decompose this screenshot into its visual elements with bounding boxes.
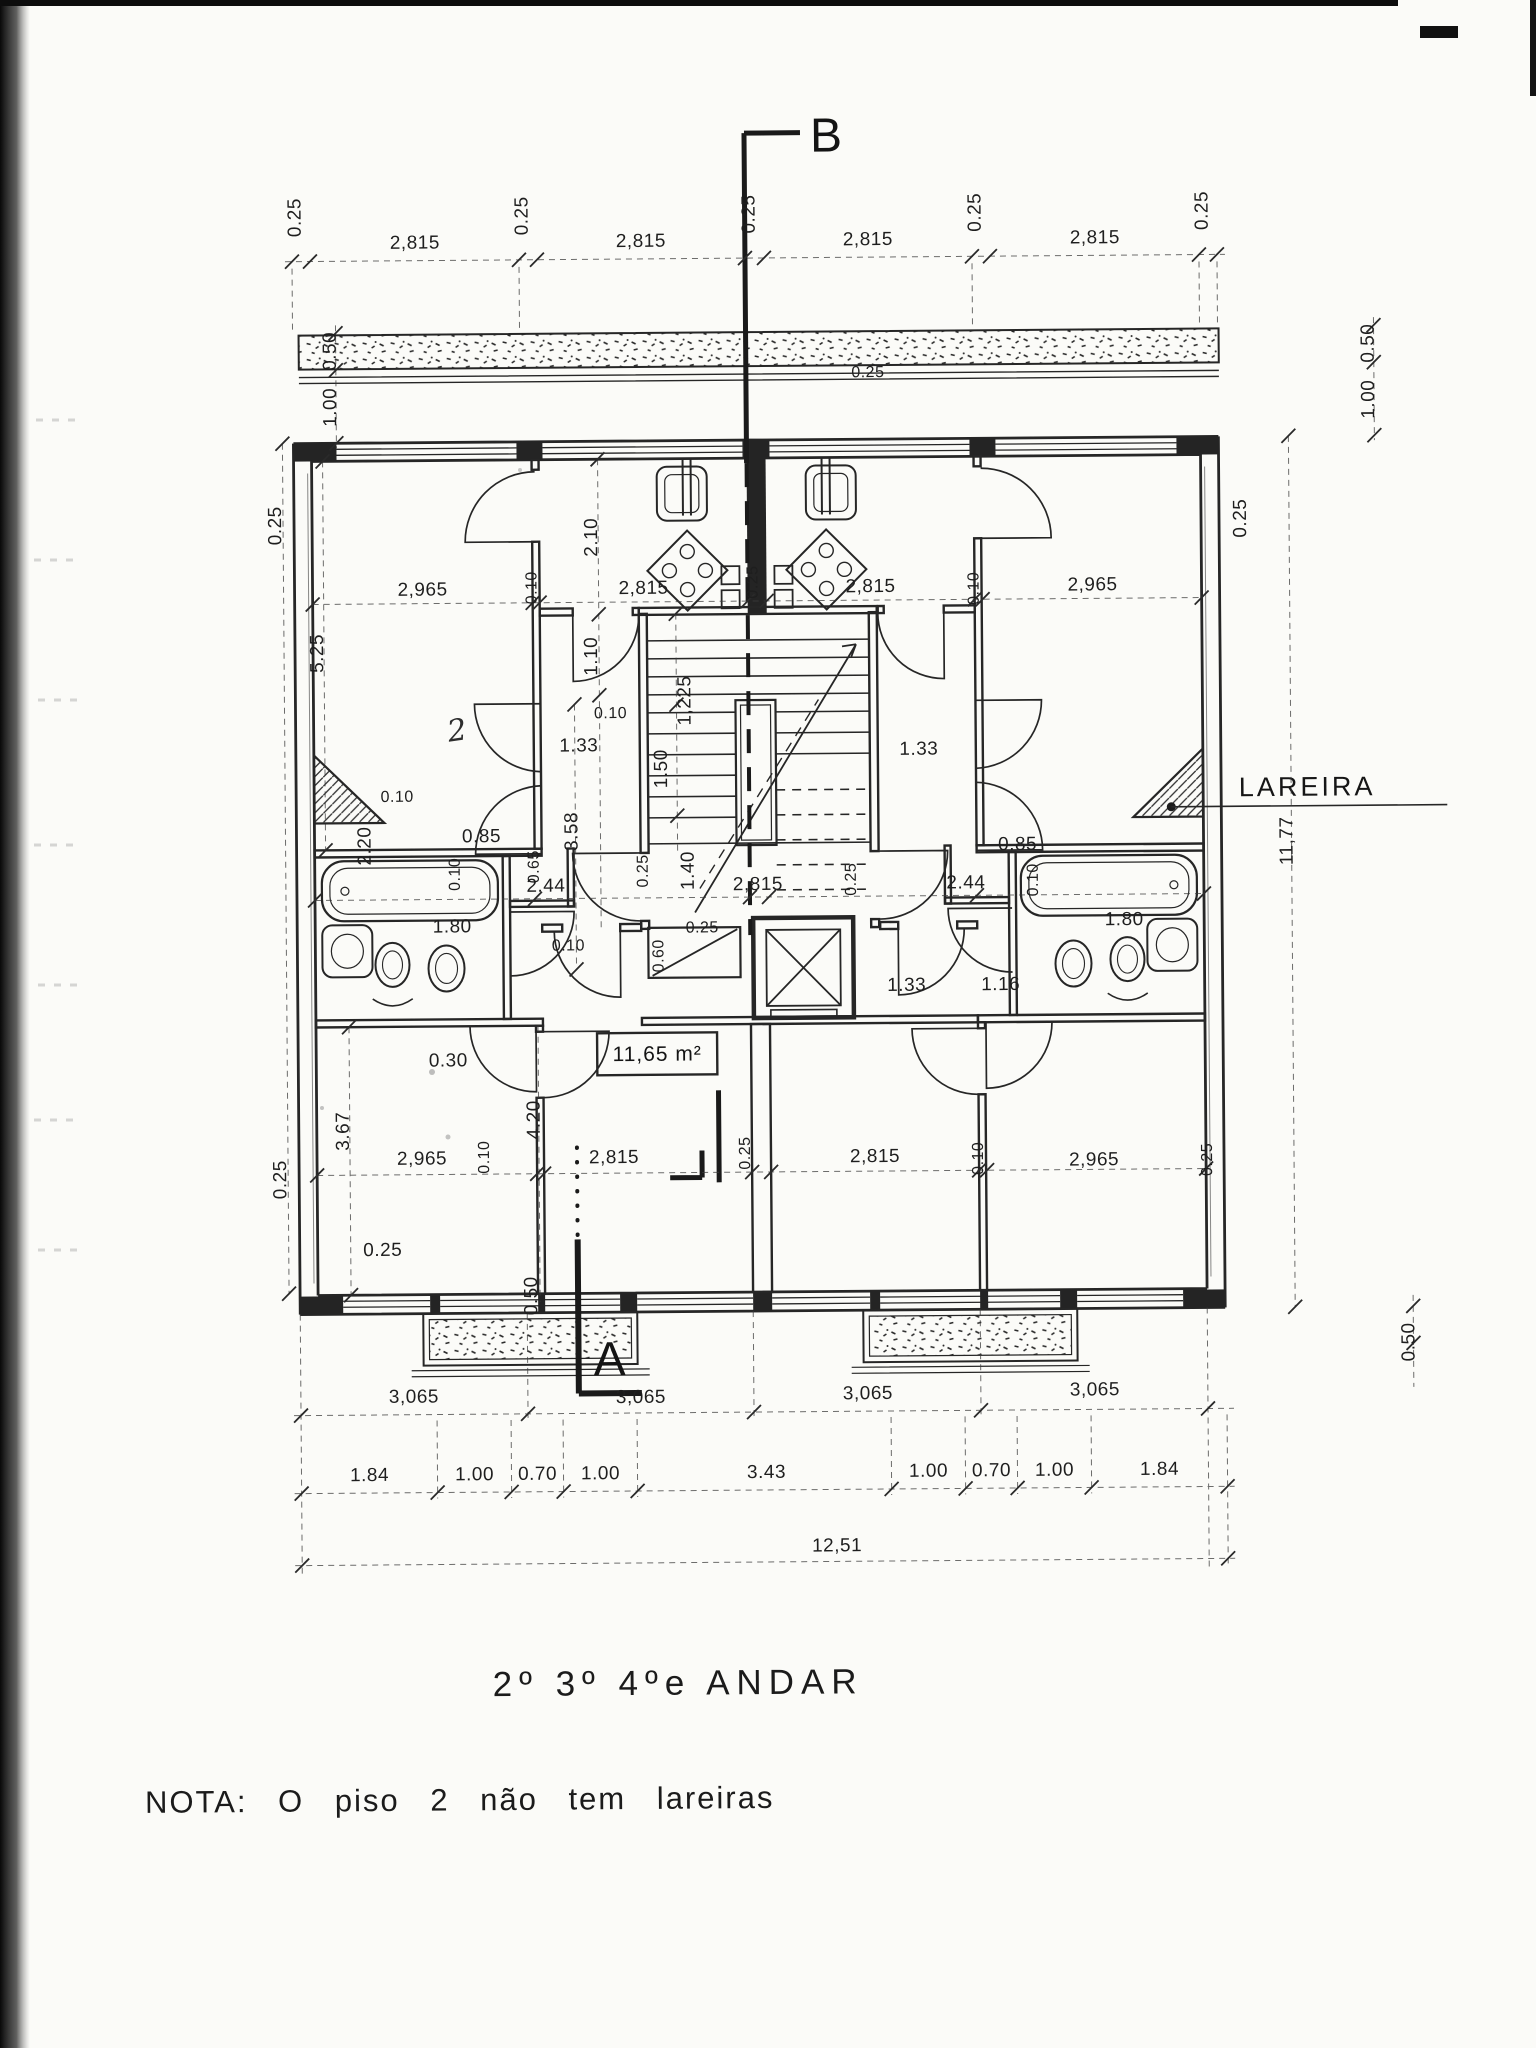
dim-label: 0.25 xyxy=(686,919,719,936)
dim-label: 1.50 xyxy=(651,749,672,788)
dim-label: 0.85 xyxy=(998,834,1037,855)
dim-label: 0.70 xyxy=(972,1460,1011,1481)
top-balcony xyxy=(299,328,1219,383)
dim-label: 1.80 xyxy=(1105,909,1144,930)
dim-label: 0.10 xyxy=(523,571,540,604)
dim-label: 3,065 xyxy=(616,1387,666,1408)
dim-label: 1.80 xyxy=(433,916,472,937)
area-callout: 11,65 m² xyxy=(597,1032,717,1075)
dim-label: 2,965 xyxy=(397,579,447,600)
dim-label: 2,815 xyxy=(390,232,440,253)
dim-label: 5.25 xyxy=(307,634,328,673)
dim-label: 0.25 xyxy=(1199,1143,1216,1176)
sink-icon xyxy=(1147,919,1197,971)
section-marker-b: B xyxy=(810,109,842,162)
floorplan-scan: LAREIRA xyxy=(0,0,1536,2048)
bathtub-icon xyxy=(322,860,498,921)
dim-label: 2,815 xyxy=(1070,227,1120,248)
toilet-icon xyxy=(375,943,409,987)
scan-edge-right xyxy=(1530,0,1536,96)
area-label: 11,65 m² xyxy=(612,1042,702,1066)
dim-label: 2,815 xyxy=(618,578,668,599)
dim-label: 2,815 xyxy=(589,1147,639,1168)
stove-icon xyxy=(786,529,867,610)
dim-label: 12,51 xyxy=(812,1535,862,1556)
dim-label: 3,065 xyxy=(1070,1379,1120,1400)
dim-label: 0.10 xyxy=(476,1141,493,1174)
scanned-floorplan-page: LAREIRA xyxy=(0,0,1536,2048)
dim-label: 1.00 xyxy=(320,388,341,427)
bottom-balcony-right xyxy=(851,1308,1089,1373)
dim-label: 0.85 xyxy=(462,826,501,847)
lareira-callout: LAREIRA xyxy=(1167,771,1448,812)
dim-label: 2,815 xyxy=(733,874,783,895)
dim-label: 1.33 xyxy=(559,735,598,756)
dim-label: 0.30 xyxy=(429,1050,468,1071)
dim-label: 0.50 xyxy=(320,332,341,371)
dim-label: 1.40 xyxy=(678,851,699,890)
dim-label: 0.25 xyxy=(1230,499,1251,538)
dim-label: 2.20 xyxy=(354,827,375,866)
dim-label: 0.25 xyxy=(738,194,759,233)
dim-label: 1.33 xyxy=(899,739,938,760)
dim-label: 2,815 xyxy=(850,1146,900,1167)
lareira-label: LAREIRA xyxy=(1239,771,1376,802)
dim-label: 1.16 xyxy=(981,974,1020,995)
dim-label: 2,965 xyxy=(1067,574,1117,595)
dim-label: 2.44 xyxy=(946,872,985,893)
bathtub-icon xyxy=(1021,855,1197,916)
dim-label: 1.00 xyxy=(909,1461,948,1482)
dim-label: 0.25 xyxy=(635,854,652,887)
dim-label: 3,065 xyxy=(843,1383,893,1404)
dim-label: 1.10 xyxy=(581,637,602,676)
dim-label: 0.25 xyxy=(511,196,532,235)
dim-label: 0.25 xyxy=(744,565,761,598)
scan-edge-left xyxy=(0,0,30,2048)
dim-label: 1.00 xyxy=(1035,1460,1074,1481)
scan-mark-topright xyxy=(1420,26,1458,38)
dim-label: 1.33 xyxy=(887,975,926,996)
dim-label: 4.20 xyxy=(524,1100,545,1139)
elevator xyxy=(753,917,854,1019)
bidet-icon xyxy=(428,945,464,991)
bathroom-left xyxy=(322,860,499,1006)
bidet-icon xyxy=(1110,937,1144,981)
dim-label: 2,965 xyxy=(397,1148,447,1169)
scan-edge-top xyxy=(0,0,1398,6)
dim-label: 2.10 xyxy=(581,518,602,557)
stair-direction-line xyxy=(693,644,858,912)
drawing: LAREIRA xyxy=(132,105,1455,1820)
dim-label: 0.25 xyxy=(1191,191,1212,230)
handwritten-mark: 2 xyxy=(444,712,470,750)
sink-icon xyxy=(322,925,372,977)
note-text: NOTA: O piso 2 não tem lareiras xyxy=(145,1780,775,1820)
dim-label: 1.84 xyxy=(350,1465,389,1486)
dim-label: 11,77 xyxy=(1276,816,1297,865)
dim-label: 3.58 xyxy=(561,812,582,851)
dim-label: 0.10 xyxy=(1025,863,1042,896)
dim-label: 0.25 xyxy=(843,863,860,896)
dim-label: 0.50 xyxy=(1357,324,1378,363)
fireplace-left xyxy=(314,755,385,824)
dim-label: 0.10 xyxy=(552,937,585,954)
dim-label: 0.50 xyxy=(1398,1322,1419,1361)
dim-label: 3.67 xyxy=(333,1112,354,1151)
dim-label: 1.84 xyxy=(1140,1459,1179,1480)
dim-label: 1.00 xyxy=(1358,380,1379,419)
dim-label: 0.10 xyxy=(447,858,464,891)
dim-label: 0.25 xyxy=(851,364,884,381)
dim-label: 0.25 xyxy=(363,1240,402,1261)
dim-label: 2.44 xyxy=(526,876,565,897)
dim-label: 2,965 xyxy=(1069,1149,1119,1170)
dim-label: 3,065 xyxy=(389,1387,439,1408)
dim-label: 0.50 xyxy=(521,1276,542,1315)
dim-label: 0.25 xyxy=(284,198,305,237)
dim-label: 0.25 xyxy=(737,1136,754,1169)
dim-label: 1.00 xyxy=(455,1464,494,1485)
dim-label: 1,225 xyxy=(674,675,695,725)
dim-label: 3.43 xyxy=(747,1462,786,1483)
dim-label: 0.60 xyxy=(650,939,667,972)
room-extent-marks xyxy=(669,1090,719,1182)
dim-label: 2,815 xyxy=(845,576,895,597)
dim-label: 0.10 xyxy=(594,705,627,722)
dim-label: 0.10 xyxy=(381,789,414,806)
dim-label: 2,815 xyxy=(616,231,666,252)
dim-label: 0.10 xyxy=(965,572,982,605)
dim-label: 0.25 xyxy=(265,506,286,545)
dim-label: 0.25 xyxy=(270,1160,291,1199)
dim-label: 0.70 xyxy=(518,1464,557,1485)
dim-label: 0.25 xyxy=(964,193,985,232)
section-marker-a: A xyxy=(593,1333,625,1386)
page-title: 2º 3º 4ºe ANDAR xyxy=(493,1662,864,1704)
dim-label: 1.00 xyxy=(581,1463,620,1484)
dim-label: 2,815 xyxy=(843,229,893,250)
dim-label: 0.10 xyxy=(970,1142,987,1175)
scan-streaks xyxy=(34,420,80,1250)
toilet-icon xyxy=(1055,940,1091,986)
